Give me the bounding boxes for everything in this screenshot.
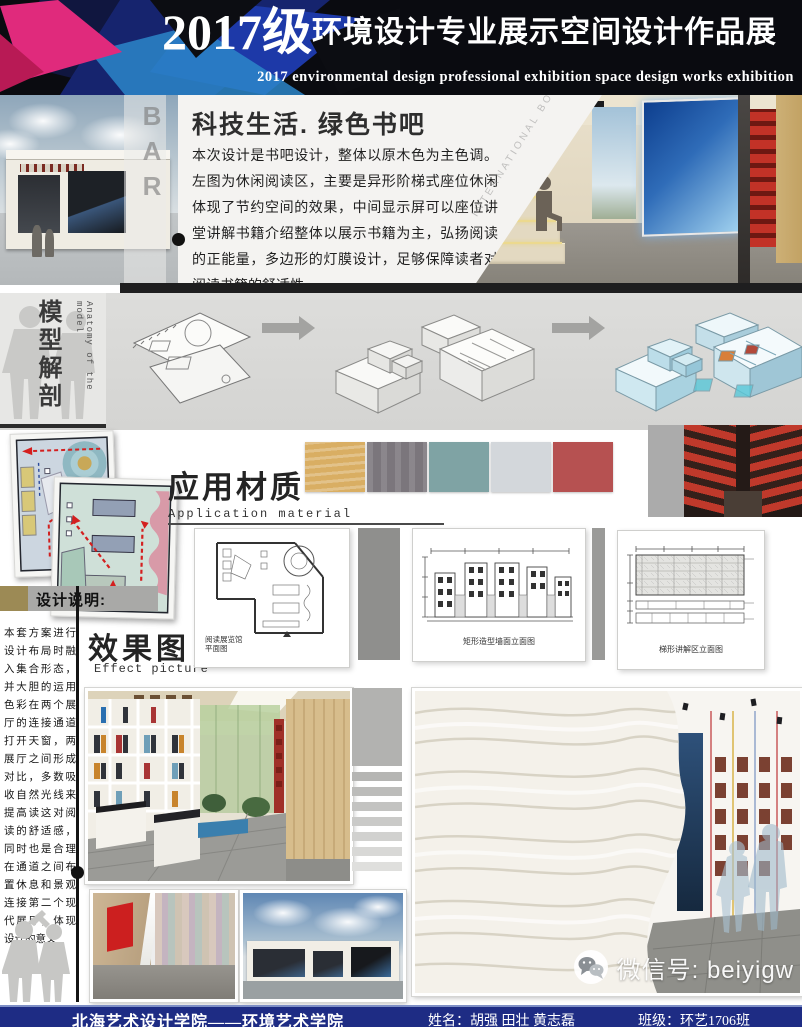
display-screen [642,97,740,236]
effect-render-interior-large [85,688,353,884]
anatomy-title-en: Anatomy of the model [74,301,94,424]
material-swatch-teal [429,442,489,492]
red-bookshelf-render [684,425,802,517]
model-anatomy-section: 模型解剖 Anatomy of the model [0,293,802,430]
exterior-render-image: BOOK BAR [0,95,178,285]
effects-title-en: Effect picture [94,662,209,676]
red-bookshelf-column [750,109,776,247]
gray-divider-strip [358,528,400,660]
model-stage-colored-model [610,293,802,425]
red-display-panel [107,902,133,952]
cad-caption: 梯形讲解区立面图 [659,645,723,654]
book-bar-vertical-label: BOOK BAR [131,101,178,285]
effect-render-wavy-wall: 微信号: beiyigw [412,688,802,996]
design-notes-header: 设计说明: [0,586,158,611]
intro-title: 科技生活. 绿色书吧 [192,105,426,141]
wechat-icon [573,949,609,985]
model-stage-white-model [322,297,538,425]
poster-title: 2017级 环境设计专业展示空间设计作品展 [162,4,777,60]
effect-render-exterior [240,890,406,1002]
footer-names: 姓名：胡强 田壮 黄志磊 [428,1010,575,1027]
material-swatch-wood [305,442,365,492]
wood-wall-panel [776,95,802,263]
intro-band: BOOK BAR [0,95,802,285]
gray-divider-strip [648,425,684,517]
design-notes-paragraph: 本套方案进行设计布局时融入集合形态，并大胆的运用色彩在两个展厅的连接通道打开天窗… [4,624,76,948]
highfive-silhouettes [2,908,74,1002]
wechat-id-text: 微信号: beiyigw [617,950,794,985]
materials-title-en: Application material [168,507,444,521]
model-stage-plan-sketch [124,305,256,423]
decorative-dot [172,233,185,246]
header-accent-square [0,586,28,611]
storefront-window [18,175,60,233]
footer-class: 班级：环艺1706班 [638,1010,750,1027]
title-year: 2017级 [162,4,312,60]
exhibition-poster: 2017级 环境设计专业展示空间设计作品展 2017 environmental… [0,0,802,1027]
vertical-divider [76,586,79,1002]
process-arrow [552,323,590,333]
footer-school: 北海艺术设计学院——环境艺术学院 [72,1008,344,1027]
gray-divider-strip [592,528,605,660]
glass-partition [738,95,750,285]
person-silhouette [45,229,54,257]
section-divider-bar [120,283,802,293]
material-swatch-concrete [367,442,427,492]
book-bar-label-band: BOOK BAR [124,95,166,285]
header-banner: 2017级 环境设计专业展示空间设计作品展 2017 environmental… [0,0,802,95]
window-opening [592,107,636,219]
anatomy-label-box: 模型解剖 Anatomy of the model [0,293,106,428]
decorative-dot [71,866,84,879]
footer-bar: 北海艺术设计学院——环境艺术学院 姓名：胡强 田壮 黄志磊 班级：环艺1706班 [0,1005,802,1027]
storefront-glass [68,171,126,233]
anatomy-title-cn: 模型解剖 [30,299,65,411]
poster-subtitle-english: 2017 environmental design professional e… [257,69,794,86]
gray-ladder-strip [352,688,402,766]
wechat-watermark: 微信号: beiyigw [573,949,794,985]
book-bar-building-small [247,941,399,981]
cad-stepped-elevation: 梯形讲解区立面图 [617,530,765,670]
striped-wall [155,893,235,965]
design-notes-title: 设计说明: [36,589,106,610]
intro-paragraph: 本次设计是书吧设计，整体以原木色为主色调。左图为休闲阅读区，主要是异形阶梯式座位… [192,142,498,298]
process-arrow [262,323,300,333]
material-swatch-lightgray [491,442,551,492]
cad-wall-elevation: 矩形造型墙面立面图 [412,528,586,662]
cad-floor-plan: 阅读展览馆 平面图 [194,528,350,668]
title-chinese: 环境设计专业展示空间设计作品展 [312,10,777,60]
cad-caption: 矩形造型墙面立面图 [463,637,535,646]
cad-caption: 阅读展览馆 平面图 [205,635,243,653]
effect-render-hallway [90,890,238,1002]
person-silhouette [32,225,42,257]
material-swatch-red [553,442,613,492]
